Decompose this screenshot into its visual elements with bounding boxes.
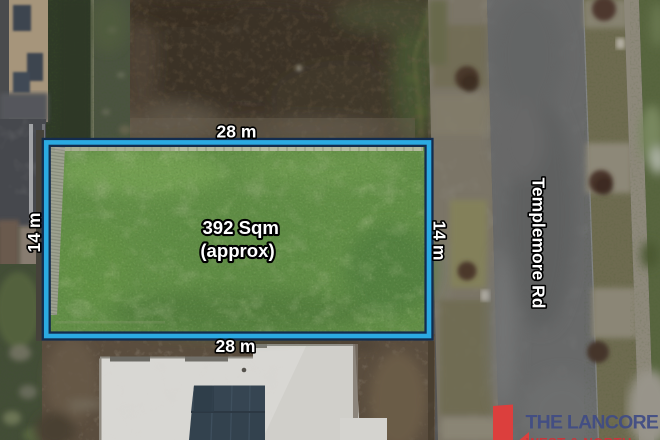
svg-text:Templemore Rd: Templemore Rd xyxy=(529,178,549,309)
svg-text:14 m: 14 m xyxy=(24,213,44,253)
svg-text:28 m: 28 m xyxy=(217,121,257,141)
svg-text:THE LANCORE: THE LANCORE xyxy=(526,412,659,434)
svg-text:392 Sqm: 392 Sqm xyxy=(202,217,278,238)
svg-text:(approx): (approx) xyxy=(200,240,274,261)
svg-text:14 m: 14 m xyxy=(430,221,450,261)
svg-text:WEST & NORTH: WEST & NORTH xyxy=(526,436,632,440)
svg-text:28 m: 28 m xyxy=(216,336,256,356)
